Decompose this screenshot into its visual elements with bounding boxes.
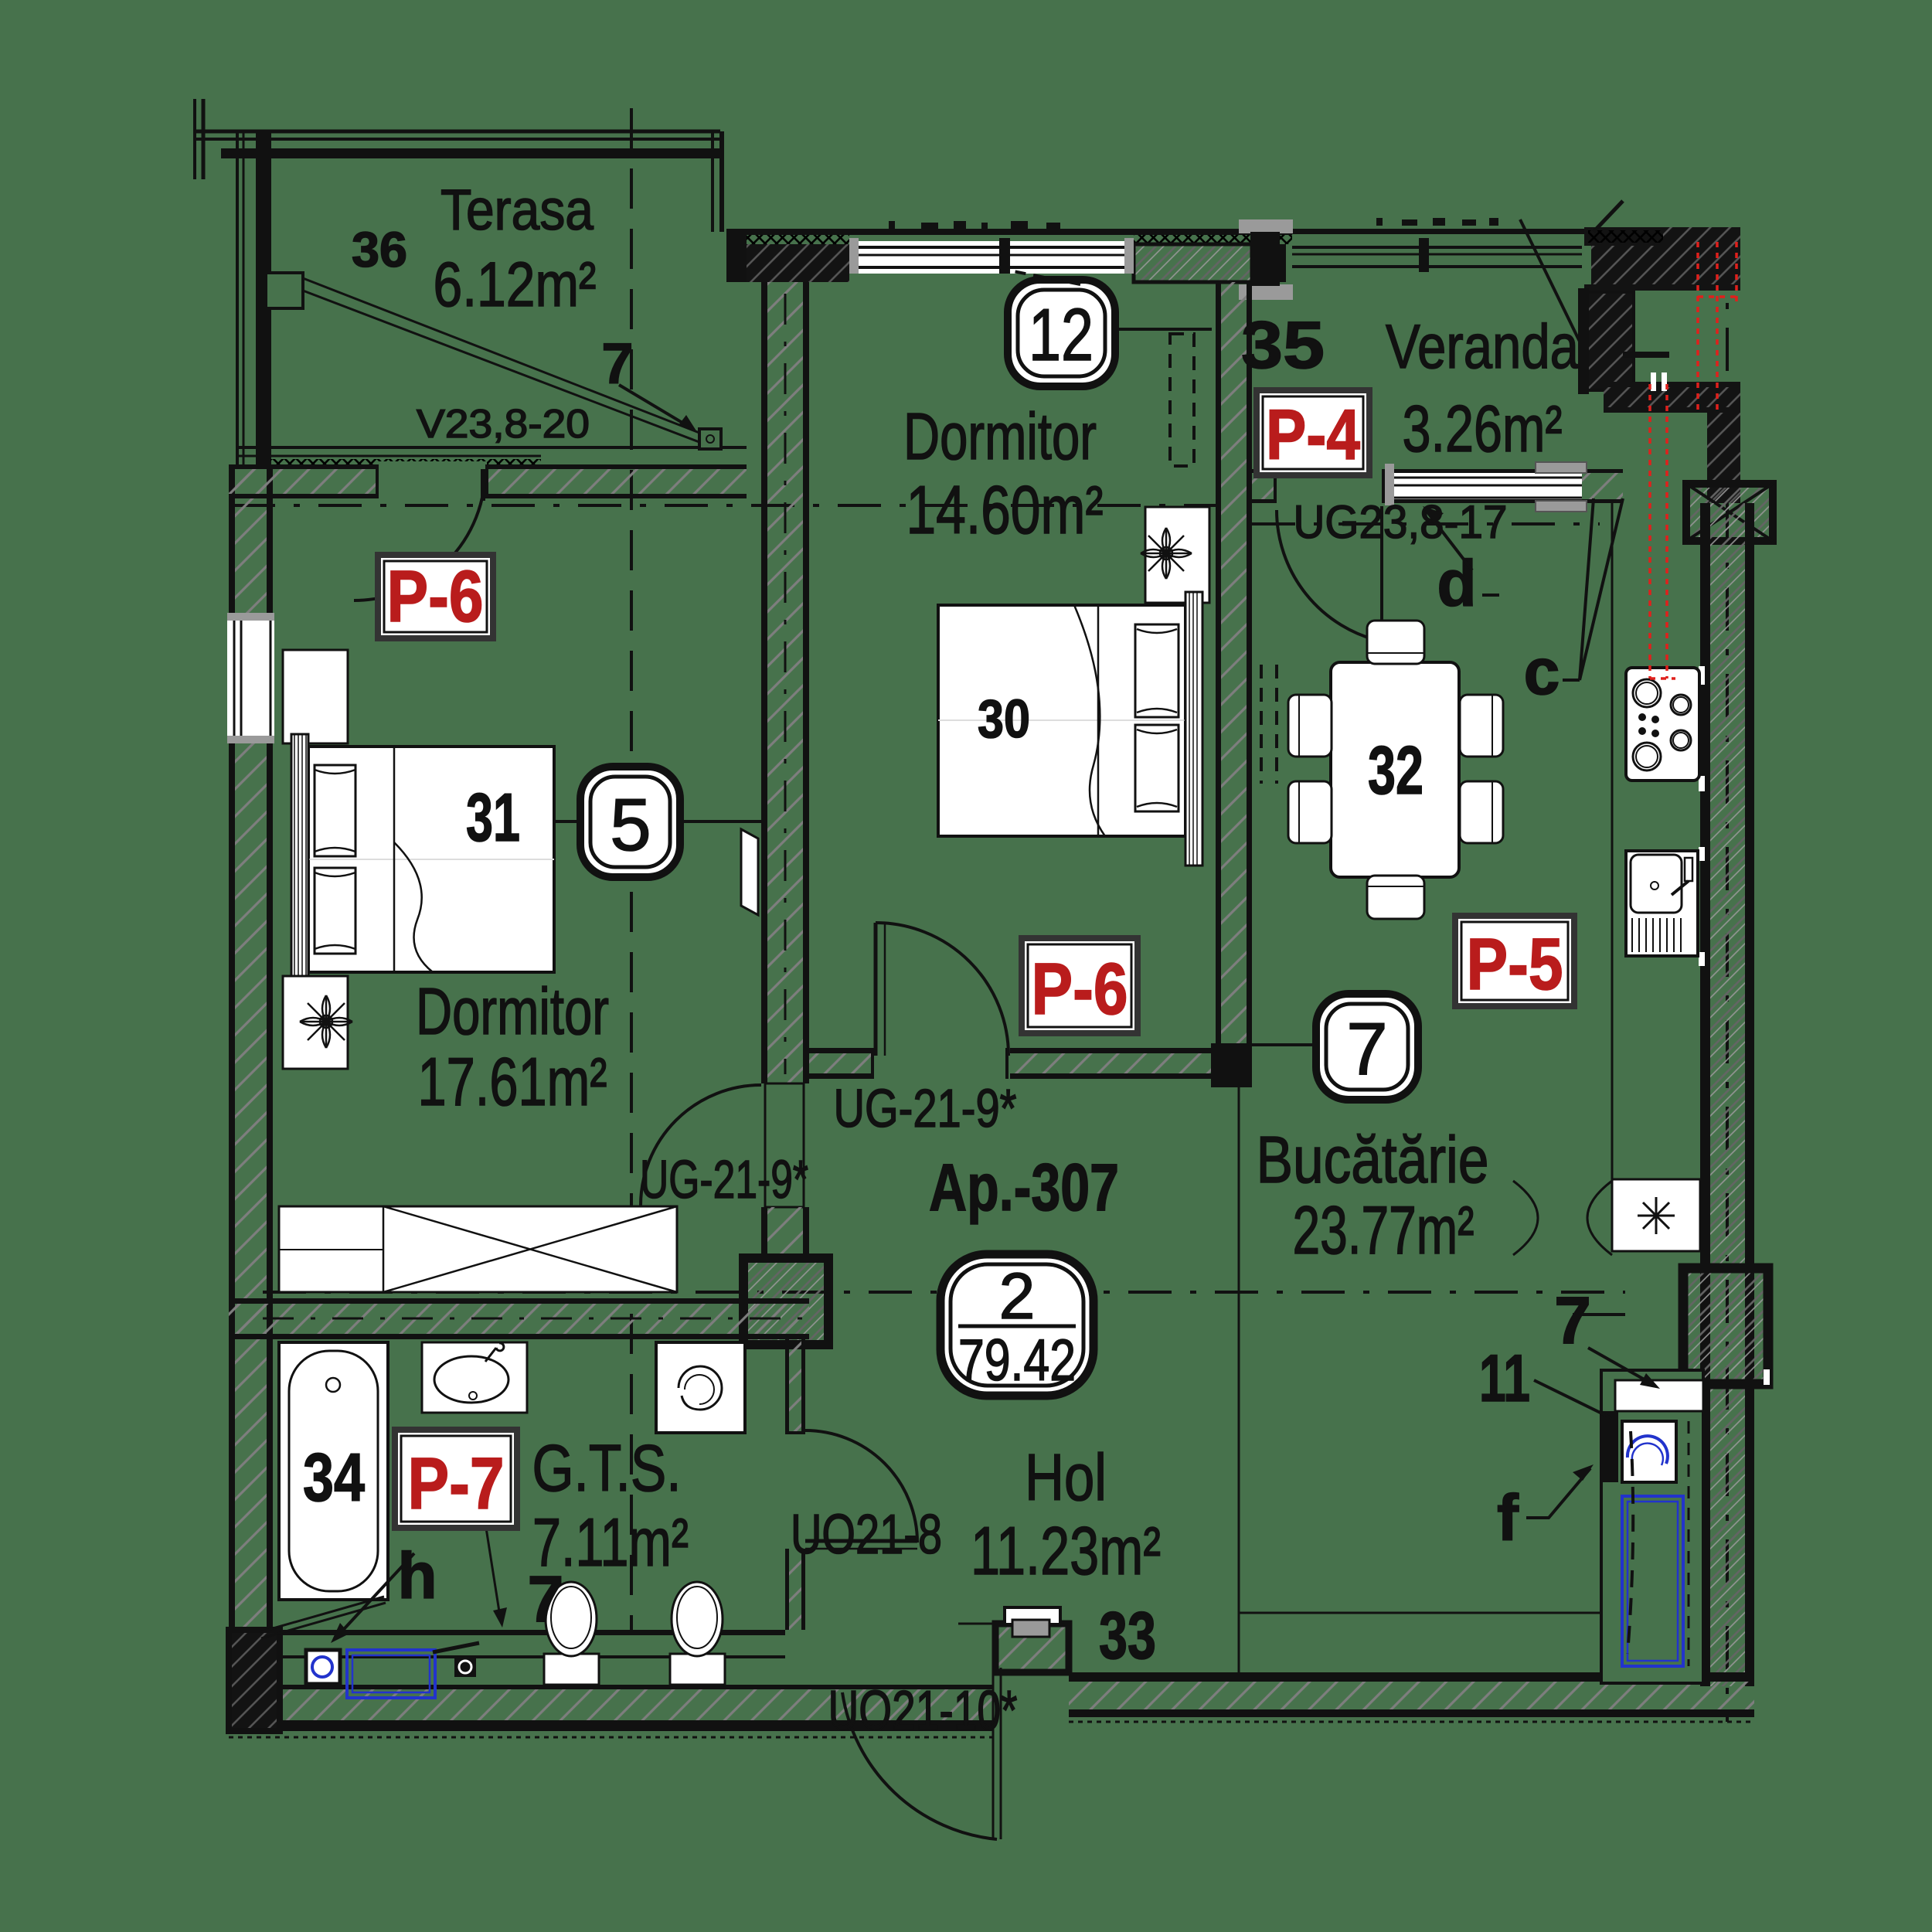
svg-text:c: c [1524,635,1560,708]
svg-text:UG-21-9*: UG-21-9* [834,1078,1017,1138]
svg-text:G.T.S.: G.T.S. [532,1432,682,1505]
svg-text:f: f [1497,1481,1519,1554]
svg-text:5: 5 [610,784,651,866]
svg-text:UO21-8: UO21-8 [791,1504,942,1566]
svg-text:h: h [397,1539,437,1612]
svg-text:UG-21-9*: UG-21-9* [640,1149,808,1209]
svg-text:11.23m²: 11.23m² [971,1512,1161,1589]
svg-text:Dormitor: Dormitor [903,400,1097,474]
svg-text:32: 32 [1368,732,1423,808]
svg-text:34: 34 [303,1439,365,1515]
svg-text:7: 7 [528,1563,564,1635]
svg-text:30: 30 [978,689,1030,749]
svg-text:36: 36 [352,222,407,277]
svg-text:UO21-10*: UO21-10* [828,1680,1018,1742]
svg-text:Ap.-307: Ap.-307 [929,1151,1119,1225]
svg-text:17.61m²: 17.61m² [418,1043,607,1120]
svg-text:14.60m²: 14.60m² [906,471,1104,548]
svg-text:23.77m²: 23.77m² [1293,1192,1475,1268]
svg-text:31: 31 [466,779,520,855]
svg-text:Hol: Hol [1025,1441,1107,1515]
svg-text:33: 33 [1099,1599,1156,1673]
svg-text:11: 11 [1479,1342,1530,1416]
svg-text:6.12m²: 6.12m² [434,250,597,320]
svg-text:d: d [1437,547,1476,620]
svg-text:Veranda: Veranda [1386,312,1580,382]
svg-text:UG23,8-17: UG23,8-17 [1294,496,1508,548]
svg-text:7: 7 [601,332,633,396]
svg-text:2: 2 [999,1260,1036,1332]
svg-text:P-6: P-6 [1032,948,1128,1030]
svg-text:12: 12 [1029,294,1094,376]
svg-text:P-7: P-7 [408,1443,505,1525]
svg-text:P-5: P-5 [1467,923,1563,1005]
svg-text:Terasa: Terasa [440,178,594,242]
svg-text:7: 7 [1554,1284,1591,1358]
svg-text:35: 35 [1241,308,1325,383]
svg-text:Bucătărie: Bucătărie [1257,1124,1489,1197]
svg-text:79.42: 79.42 [958,1328,1076,1393]
svg-text:V23,8-20: V23,8-20 [417,402,590,447]
svg-text:Dormitor: Dormitor [416,975,609,1049]
svg-text:P-4: P-4 [1266,396,1360,474]
svg-text:3.26m²: 3.26m² [1403,393,1563,466]
svg-text:7: 7 [1346,1008,1387,1090]
svg-text:P-6: P-6 [387,556,484,638]
